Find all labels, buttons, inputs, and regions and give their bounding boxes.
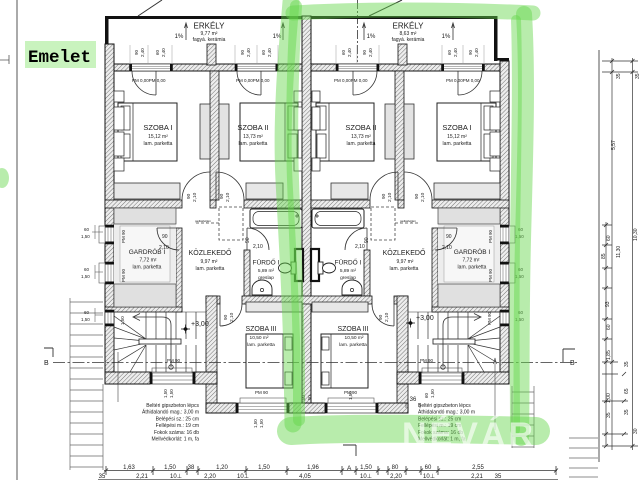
svg-text:lam. parketta: lam. parketta [458, 265, 487, 271]
svg-text:90: 90 [446, 234, 452, 240]
svg-text:1,50: 1,50 [259, 419, 264, 428]
svg-text:lam. parketta: lam. parketta [339, 342, 367, 348]
svg-text:15,12 m²: 15,12 m² [148, 134, 168, 140]
svg-text:2,40: 2,40 [453, 48, 458, 57]
svg-text:60: 60 [341, 49, 346, 55]
svg-text:15,12 m²: 15,12 m² [447, 134, 467, 140]
svg-text:PM 90: PM 90 [121, 268, 126, 282]
svg-text:2,55: 2,55 [472, 465, 484, 471]
svg-text:1,50: 1,50 [307, 395, 312, 404]
svg-text:1,50: 1,50 [81, 274, 90, 279]
svg-text:PM 90: PM 90 [488, 229, 493, 243]
svg-text:2,20: 2,20 [390, 474, 402, 480]
svg-text:2,10: 2,10 [253, 244, 263, 250]
svg-text:35: 35 [99, 474, 106, 480]
svg-text:SZOBA I: SZOBA I [143, 123, 172, 132]
svg-text:90: 90 [381, 193, 387, 199]
svg-text:90: 90 [162, 234, 168, 240]
svg-text:60: 60 [155, 49, 160, 55]
svg-text:1%: 1% [367, 34, 376, 40]
svg-text:2,10: 2,10 [442, 245, 452, 251]
svg-text:90: 90 [468, 49, 473, 55]
svg-text:+3,00: +3,00 [191, 321, 209, 328]
svg-text:1,63: 1,63 [123, 465, 135, 471]
svg-text:2,10: 2,10 [159, 245, 169, 251]
svg-text:2,21: 2,21 [471, 474, 483, 480]
svg-text:SZOBA II: SZOBA II [345, 123, 376, 132]
svg-text:4,05: 4,05 [299, 474, 311, 480]
svg-text:2,10: 2,10 [225, 192, 231, 202]
svg-text:1,50: 1,50 [81, 234, 90, 239]
svg-text:Emelet: Emelet [28, 48, 91, 68]
svg-text:PM 0,00PM 0,00: PM 0,00PM 0,00 [334, 78, 368, 83]
svg-text:1,50: 1,50 [81, 317, 90, 322]
svg-text:7,72 m²: 7,72 m² [463, 258, 480, 264]
svg-text:35: 35 [606, 412, 612, 418]
svg-text:60: 60 [606, 324, 612, 330]
svg-text:FÜRDŐ I: FÜRDŐ I [253, 258, 280, 267]
svg-text:10⊥: 10⊥ [170, 473, 182, 480]
svg-text:65: 65 [624, 388, 630, 394]
svg-text:90: 90 [245, 237, 251, 243]
svg-text:9,97 m²: 9,97 m² [397, 259, 414, 265]
svg-text:35: 35 [495, 474, 502, 480]
svg-text:5,89 m²: 5,89 m² [258, 268, 275, 274]
svg-text:10,30: 10,30 [633, 228, 639, 241]
svg-text:KÖZLEKEDŐ: KÖZLEKEDŐ [383, 248, 426, 257]
svg-text:11,30: 11,30 [616, 246, 622, 258]
svg-text:GARDRÓB I: GARDRÓB I [454, 247, 491, 256]
svg-text:2,40: 2,40 [347, 48, 352, 57]
svg-text:Belépési sz.: 25 cm: Belépési sz.: 25 cm [156, 416, 199, 422]
svg-text:PM 90: PM 90 [121, 229, 126, 243]
svg-text:1,85: 1,85 [606, 350, 612, 360]
svg-text:Fellépési m.: 19 cm: Fellépési m.: 19 cm [156, 423, 199, 429]
svg-text:FÜRDŐ I: FÜRDŐ I [335, 258, 362, 267]
svg-text:1,50: 1,50 [430, 389, 435, 398]
svg-text:NÉVÁR: NÉVÁR [402, 416, 536, 454]
svg-text:lam. parketta: lam. parketta [133, 265, 162, 271]
svg-text:90: 90 [186, 193, 192, 199]
svg-text:fagyá. kerámia: fagyá. kerámia [193, 37, 226, 43]
svg-text:5,57: 5,57 [611, 140, 617, 150]
svg-text:10,50 m²: 10,50 m² [345, 335, 364, 341]
svg-text:Áthidalandó mag.: 3,00 m: Áthidalandó mag.: 3,00 m [142, 409, 199, 416]
svg-text:PM 0,00PM 0,00: PM 0,00PM 0,00 [236, 78, 270, 83]
svg-text:2,40: 2,40 [140, 48, 145, 57]
svg-text:2,10: 2,10 [229, 312, 235, 322]
svg-text:1%: 1% [175, 34, 184, 40]
svg-text:fagyá. kerámia: fagyá. kerámia [392, 37, 425, 43]
svg-text:9,97 m²: 9,97 m² [201, 259, 218, 265]
svg-text:60: 60 [84, 227, 90, 232]
svg-text:90: 90 [414, 193, 420, 199]
svg-text:PM 90: PM 90 [488, 268, 493, 282]
svg-text:padlásfeljáró: padlásfeljáró [195, 219, 211, 223]
svg-text:2,21: 2,21 [136, 474, 148, 480]
svg-text:Fokok száma: 16 db: Fokok száma: 16 db [154, 430, 199, 436]
svg-text:1%: 1% [442, 34, 451, 40]
svg-text:36: 36 [410, 397, 417, 403]
svg-text:60: 60 [424, 392, 429, 398]
svg-text:Beltéri gipszbeton lépcs: Beltéri gipszbeton lépcs [146, 403, 199, 409]
svg-text:lam. parketta: lam. parketta [347, 141, 376, 147]
svg-text:38: 38 [188, 465, 195, 471]
svg-text:lam. parketta: lam. parketta [390, 266, 419, 272]
svg-text:B: B [570, 360, 575, 367]
svg-text:10⊥: 10⊥ [237, 473, 249, 480]
svg-text:2,40: 2,40 [246, 48, 251, 57]
svg-text:lam. parketta: lam. parketta [247, 342, 275, 348]
svg-text:60: 60 [261, 49, 266, 55]
svg-text:35: 35 [624, 409, 630, 415]
svg-text:90: 90 [378, 314, 384, 320]
svg-text:2,40: 2,40 [368, 48, 373, 57]
svg-text:85: 85 [601, 253, 607, 259]
svg-text:1,50: 1,50 [348, 391, 353, 400]
svg-text:1,00: 1,00 [606, 393, 612, 403]
svg-text:10⊥: 10⊥ [423, 473, 435, 480]
svg-text:13,73 m²: 13,73 m² [351, 134, 371, 140]
svg-text:greslap: greslap [340, 275, 356, 281]
svg-text:35: 35 [624, 361, 630, 367]
svg-text:10,50 m²: 10,50 m² [250, 335, 269, 341]
svg-text:ERKÉLY: ERKÉLY [194, 22, 226, 31]
svg-text:2,40: 2,40 [267, 48, 272, 57]
svg-text:10⊥: 10⊥ [360, 473, 372, 480]
svg-text:7,72 m²: 7,72 m² [140, 258, 157, 264]
svg-text:2,10: 2,10 [387, 192, 393, 202]
svg-text:lam. parketta: lam. parketta [144, 141, 173, 147]
svg-text:B: B [44, 360, 49, 367]
svg-text:greslap: greslap [258, 275, 274, 281]
svg-text:Áthidalandó mag.: 3,00 m: Áthidalandó mag.: 3,00 m [418, 409, 475, 416]
svg-text:2,10: 2,10 [192, 192, 198, 202]
svg-text:1,50: 1,50 [120, 316, 125, 325]
svg-text:1,50: 1,50 [360, 465, 372, 471]
svg-text:lam. parketta: lam. parketta [196, 266, 225, 272]
svg-text:A: A [347, 465, 352, 472]
svg-text:1,50: 1,50 [253, 419, 258, 428]
svg-text:1,50: 1,50 [164, 465, 176, 471]
svg-text:2,10: 2,10 [355, 244, 365, 250]
svg-text:30: 30 [633, 428, 639, 434]
svg-text:80: 80 [392, 465, 399, 471]
svg-text:PM 0,00PM 0,00: PM 0,00PM 0,00 [446, 78, 480, 83]
svg-text:2,40: 2,40 [161, 48, 166, 57]
svg-text:2,10: 2,10 [384, 312, 390, 322]
svg-text:PM 0,00PM 0,00: PM 0,00PM 0,00 [132, 78, 166, 83]
svg-text:1,96: 1,96 [307, 465, 319, 471]
svg-text:Beltéri gipszbeton lépcs: Beltéri gipszbeton lépcs [418, 403, 471, 409]
svg-text:90: 90 [240, 49, 245, 55]
svg-text:padlásfeljáró: padlásfeljáró [400, 219, 416, 223]
svg-text:60: 60 [606, 235, 612, 241]
svg-text:5,89 m²: 5,89 m² [340, 268, 357, 274]
svg-text:Mellvédkorlát: 1 m, fa: Mellvédkorlát: 1 m, fa [151, 437, 199, 443]
svg-text:90: 90 [364, 237, 370, 243]
svg-text:1,50: 1,50 [163, 389, 168, 398]
svg-text:90: 90 [362, 49, 367, 55]
svg-text:35: 35 [635, 73, 640, 79]
svg-text:lam. parketta: lam. parketta [443, 141, 472, 147]
svg-text:+3,00: +3,00 [416, 315, 434, 322]
svg-text:93: 93 [605, 301, 611, 307]
svg-text:PM 90: PM 90 [487, 311, 492, 325]
svg-text:2,10: 2,10 [420, 192, 426, 202]
svg-text:90: 90 [223, 314, 229, 320]
svg-text:2,40: 2,40 [474, 48, 479, 57]
svg-text:1,50: 1,50 [258, 465, 270, 471]
svg-text:60: 60 [425, 465, 432, 471]
svg-text:KÖZLEKEDŐ: KÖZLEKEDŐ [189, 248, 232, 257]
svg-text:PM 90: PM 90 [255, 390, 269, 395]
svg-text:SZOBA I: SZOBA I [442, 123, 471, 132]
svg-text:ERKÉLY: ERKÉLY [393, 22, 425, 31]
svg-text:13,73 m²: 13,73 m² [243, 134, 263, 140]
svg-text:2,20: 2,20 [204, 474, 216, 480]
svg-text:60: 60 [84, 267, 90, 272]
svg-text:60: 60 [447, 49, 452, 55]
svg-text:1,20: 1,20 [216, 465, 228, 471]
svg-text:60: 60 [84, 310, 90, 315]
svg-text:SZOBA III: SZOBA III [337, 326, 368, 333]
svg-text:SZOBA II: SZOBA II [237, 123, 268, 132]
svg-text:1,50: 1,50 [169, 389, 174, 398]
svg-text:SZOBA III: SZOBA III [245, 326, 276, 333]
svg-text:90: 90 [219, 193, 225, 199]
svg-text:90: 90 [134, 49, 139, 55]
svg-text:lam. parketta: lam. parketta [239, 141, 268, 147]
svg-text:35: 35 [616, 73, 622, 79]
